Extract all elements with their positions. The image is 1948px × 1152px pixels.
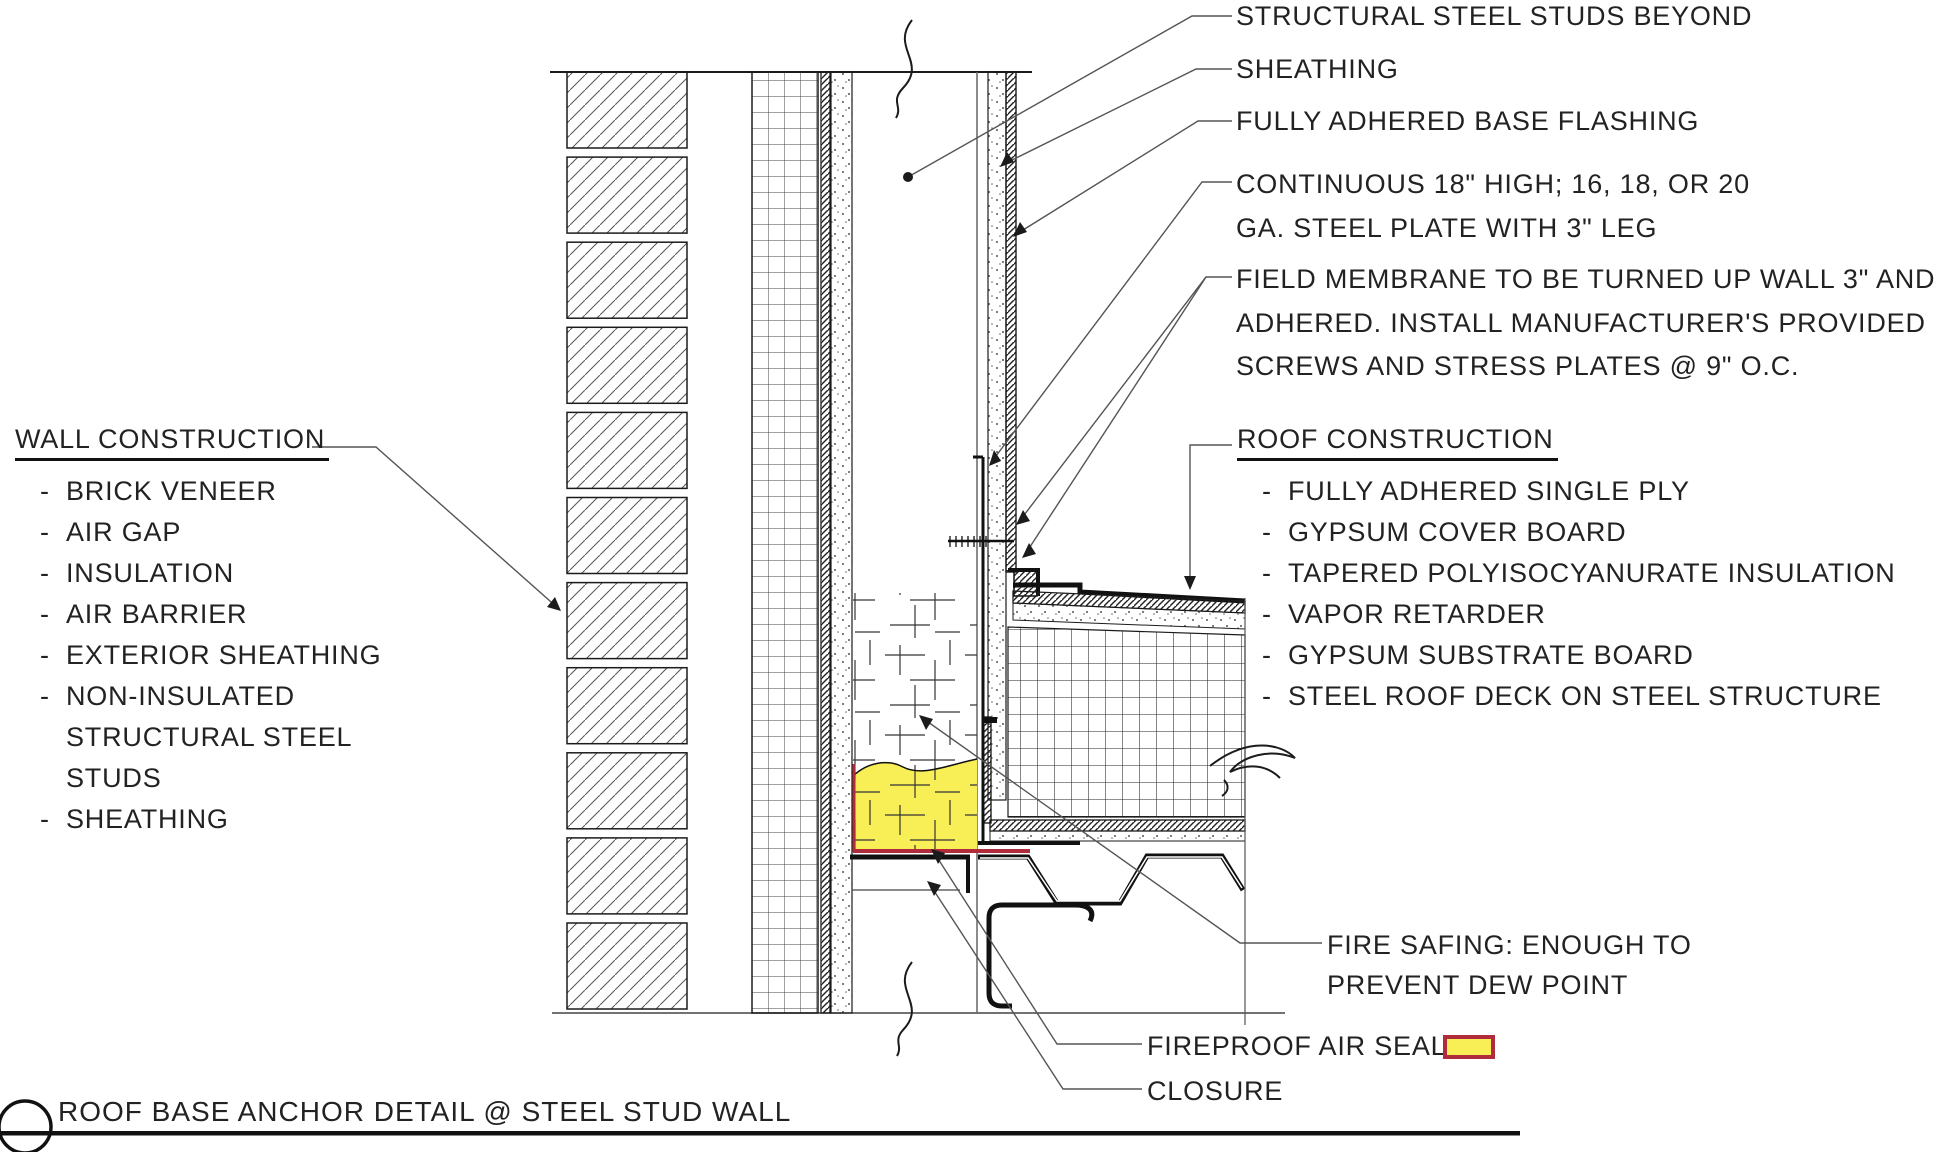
wall-construction-list: WALL CONSTRUCTION -BRICK VENEER -AIR GAP… bbox=[15, 424, 435, 840]
bullet: - bbox=[1262, 635, 1288, 676]
detail-bubble-circle bbox=[0, 1101, 51, 1152]
membrane-upturn bbox=[983, 717, 991, 823]
roof-item-label: STEEL ROOF DECK ON STEEL STRUCTURE bbox=[1288, 676, 1882, 717]
insulation-layer bbox=[752, 72, 818, 1013]
list-item: -BRICK VENEER bbox=[40, 471, 435, 512]
bullet: - bbox=[40, 512, 66, 553]
deck-inner-line bbox=[980, 857, 1242, 901]
drawing-sheet: STRUCTURAL STEEL STUDS BEYOND SHEATHING … bbox=[0, 0, 1948, 1152]
callout-field-membrane-line1: FIELD MEMBRANE TO BE TURNED UP WALL 3" A… bbox=[1236, 258, 1935, 302]
bullet: - bbox=[40, 594, 66, 635]
bullet: - bbox=[40, 471, 66, 512]
brick-course bbox=[567, 498, 687, 574]
callout-field-membrane: FIELD MEMBRANE TO BE TURNED UP WALL 3" A… bbox=[1236, 258, 1935, 389]
bullet: - bbox=[40, 676, 66, 799]
roof-item-label: FULLY ADHERED SINGLE PLY bbox=[1288, 471, 1690, 512]
wall-item-label: AIR GAP bbox=[66, 512, 181, 553]
brick-veneer-layer bbox=[567, 72, 687, 1009]
fire-safing-line2: PREVENT DEW POINT bbox=[1327, 966, 1692, 1006]
bullet: - bbox=[1262, 594, 1288, 635]
list-item: -VAPOR RETARDER bbox=[1262, 594, 1937, 635]
closure-piece bbox=[850, 857, 1092, 1006]
steel-roof-deck bbox=[978, 856, 1243, 903]
fire-safing-line1: FIRE SAFING: ENOUGH TO bbox=[1327, 926, 1692, 966]
list-item: -TAPERED POLYISOCYANURATE INSULATION bbox=[1262, 553, 1937, 594]
roof-item-label: VAPOR RETARDER bbox=[1288, 594, 1546, 635]
brick-course bbox=[567, 923, 687, 1009]
brick-course bbox=[567, 242, 687, 318]
air-barrier-layer bbox=[821, 72, 830, 1013]
break-mark-top bbox=[896, 20, 912, 118]
wall-section bbox=[550, 72, 1285, 1013]
wall-item-label: SHEATHING bbox=[66, 799, 229, 840]
callout-field-membrane-line2: ADHERED. INSTALL MANUFACTURER'S PROVIDED bbox=[1236, 302, 1935, 346]
bullet: - bbox=[40, 635, 66, 676]
callout-fire-safing: FIRE SAFING: ENOUGH TO PREVENT DEW POINT bbox=[1327, 926, 1692, 1005]
roof-construction-list: ROOF CONSTRUCTION -FULLY ADHERED SINGLE … bbox=[1237, 424, 1937, 717]
base-flashing-layer bbox=[1006, 72, 1016, 572]
roof-item-label: GYPSUM SUBSTRATE BOARD bbox=[1288, 635, 1694, 676]
list-item: -EXTERIOR SHEATHING bbox=[40, 635, 435, 676]
brick-course bbox=[567, 327, 687, 403]
wall-item-label: INSULATION bbox=[66, 553, 234, 594]
roof-deck-grid bbox=[1008, 627, 1245, 817]
bullet: - bbox=[40, 799, 66, 840]
fire-safing-hatch bbox=[853, 759, 977, 850]
brick-course bbox=[567, 157, 687, 233]
roof-item-label: GYPSUM COVER BOARD bbox=[1288, 512, 1626, 553]
air-seal-legend-swatch bbox=[1443, 1035, 1495, 1059]
brick-course bbox=[567, 838, 687, 914]
callout-sheathing: SHEATHING bbox=[1236, 54, 1399, 85]
callout-steel-plate-line1: CONTINUOUS 18" HIGH; 16, 18, OR 20 bbox=[1236, 163, 1750, 207]
brick-course bbox=[567, 583, 687, 659]
list-item: -AIR BARRIER bbox=[40, 594, 435, 635]
callout-base-flashing: FULLY ADHERED BASE FLASHING bbox=[1236, 106, 1699, 137]
list-item: -GYPSUM SUBSTRATE BOARD bbox=[1262, 635, 1937, 676]
callout-field-membrane-line3: SCREWS AND STRESS PLATES @ 9" O.C. bbox=[1236, 345, 1935, 389]
list-item: -GYPSUM COVER BOARD bbox=[1262, 512, 1937, 553]
break-mark-bottom bbox=[897, 962, 912, 1056]
bullet: - bbox=[1262, 471, 1288, 512]
roof-assembly bbox=[978, 570, 1245, 1025]
callout-closure: CLOSURE bbox=[1147, 1076, 1283, 1107]
brick-course bbox=[567, 668, 687, 744]
bullet: - bbox=[40, 553, 66, 594]
list-item: -FULLY ADHERED SINGLE PLY bbox=[1262, 471, 1937, 512]
substrate-board-stipple bbox=[990, 831, 1245, 841]
brick-course bbox=[567, 412, 687, 488]
list-item: -STEEL ROOF DECK ON STEEL STRUCTURE bbox=[1262, 676, 1937, 717]
brick-course bbox=[567, 753, 687, 829]
list-item: -NON-INSULATED STRUCTURAL STEEL STUDS bbox=[40, 676, 435, 799]
membrane-hook bbox=[983, 717, 997, 723]
safing-crosshatch bbox=[853, 593, 977, 776]
brick-course bbox=[567, 72, 687, 148]
list-item: -AIR GAP bbox=[40, 512, 435, 553]
roof-construction-heading: ROOF CONSTRUCTION bbox=[1237, 424, 1558, 461]
callout-fireproof-air-seal: FIREPROOF AIR SEAL bbox=[1147, 1031, 1446, 1062]
roof-item-label: TAPERED POLYISOCYANURATE INSULATION bbox=[1288, 553, 1896, 594]
substrate-board-hatch bbox=[990, 820, 1245, 831]
list-item: -SHEATHING bbox=[40, 799, 435, 840]
callout-steel-plate-line2: GA. STEEL PLATE WITH 3" LEG bbox=[1236, 207, 1750, 251]
callout-structural-steel-studs: STRUCTURAL STEEL STUDS BEYOND bbox=[1236, 1, 1752, 32]
wall-item-label: AIR BARRIER bbox=[66, 594, 247, 635]
bullet: - bbox=[1262, 676, 1288, 717]
title-rule-line bbox=[0, 1131, 1520, 1136]
detail-title: ROOF BASE ANCHOR DETAIL @ STEEL STUD WAL… bbox=[58, 1096, 791, 1128]
interior-sheathing-layer bbox=[988, 72, 1006, 800]
bullet: - bbox=[1262, 512, 1288, 553]
wall-item-label: NON-INSULATED STRUCTURAL STEEL STUDS bbox=[66, 676, 435, 799]
bullet: - bbox=[1262, 553, 1288, 594]
wall-item-label: EXTERIOR SHEATHING bbox=[66, 635, 381, 676]
list-item: -INSULATION bbox=[40, 553, 435, 594]
callout-steel-plate: CONTINUOUS 18" HIGH; 16, 18, OR 20 GA. S… bbox=[1236, 163, 1750, 250]
leader-dot bbox=[903, 172, 913, 182]
exterior-sheathing-layer bbox=[831, 72, 852, 1013]
wall-construction-heading: WALL CONSTRUCTION bbox=[15, 424, 329, 461]
wall-item-label: BRICK VENEER bbox=[66, 471, 277, 512]
